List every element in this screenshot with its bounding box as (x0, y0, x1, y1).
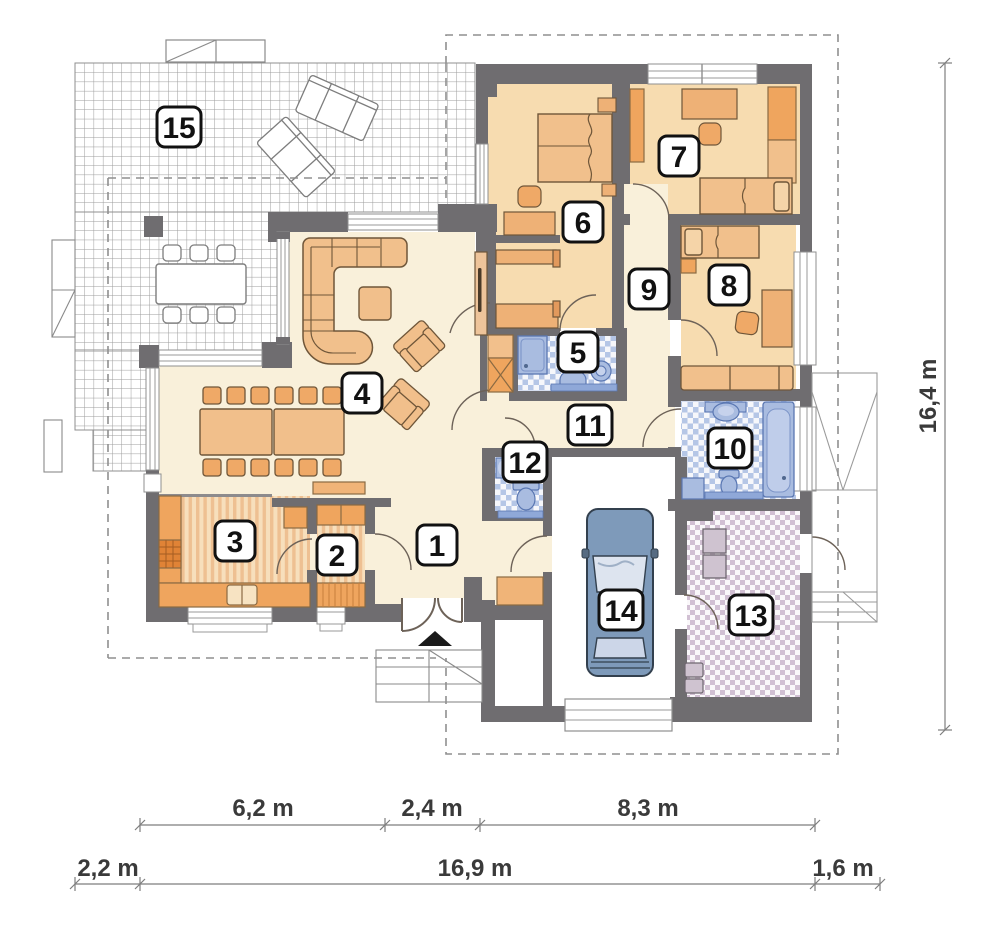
svg-text:12: 12 (508, 447, 541, 480)
svg-text:7: 7 (671, 141, 688, 174)
svg-text:2: 2 (329, 540, 346, 573)
svg-text:5: 5 (570, 337, 587, 370)
svg-text:10: 10 (713, 433, 746, 466)
svg-text:6: 6 (575, 207, 592, 240)
svg-text:1: 1 (429, 530, 446, 563)
svg-text:4: 4 (354, 378, 371, 411)
svg-text:14: 14 (604, 595, 638, 628)
svg-text:6,2 m: 6,2 m (232, 795, 293, 822)
svg-text:9: 9 (641, 274, 658, 307)
svg-text:8: 8 (721, 270, 738, 303)
svg-text:8,3 m: 8,3 m (617, 795, 678, 822)
svg-text:1,6 m: 1,6 m (812, 855, 873, 882)
svg-text:15: 15 (162, 112, 195, 145)
svg-text:16,4 m: 16,4 m (915, 359, 942, 434)
svg-text:11: 11 (574, 410, 606, 443)
svg-text:2,2 m: 2,2 m (77, 855, 138, 882)
svg-text:3: 3 (227, 526, 244, 559)
svg-text:2,4 m: 2,4 m (401, 795, 462, 822)
svg-text:16,9 m: 16,9 m (438, 855, 513, 882)
svg-text:13: 13 (734, 600, 767, 633)
